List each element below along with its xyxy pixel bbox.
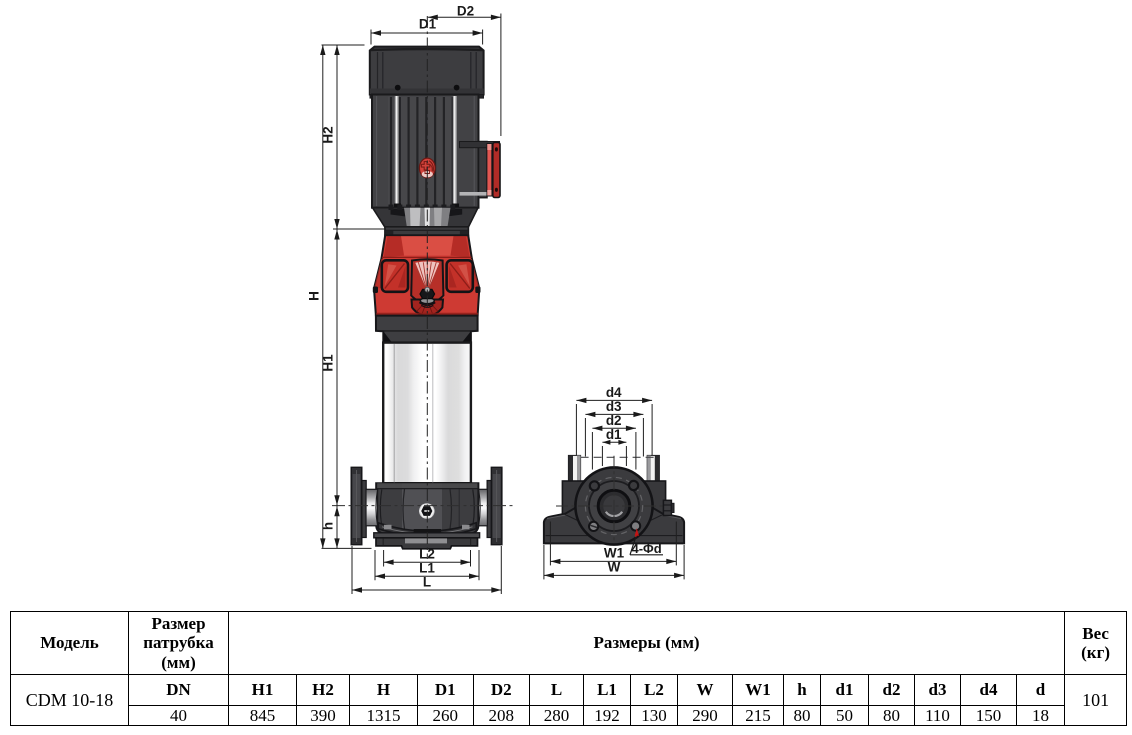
svg-text:4-Φd: 4-Φd [632,541,662,556]
svg-text:W1: W1 [604,546,625,561]
svg-text:d4: d4 [606,385,622,400]
svg-text:L2: L2 [419,547,435,562]
svg-text:W: W [608,560,621,575]
svg-text:H2: H2 [321,126,336,143]
svg-text:d2: d2 [606,413,622,428]
svg-text:h: h [321,522,336,530]
svg-text:H1: H1 [321,354,336,372]
svg-text:d1: d1 [606,427,622,442]
svg-text:L: L [423,574,431,589]
svg-text:L1: L1 [419,561,435,576]
svg-text:d3: d3 [606,399,622,414]
svg-text:H: H [307,291,322,301]
svg-text:D2: D2 [457,3,474,18]
